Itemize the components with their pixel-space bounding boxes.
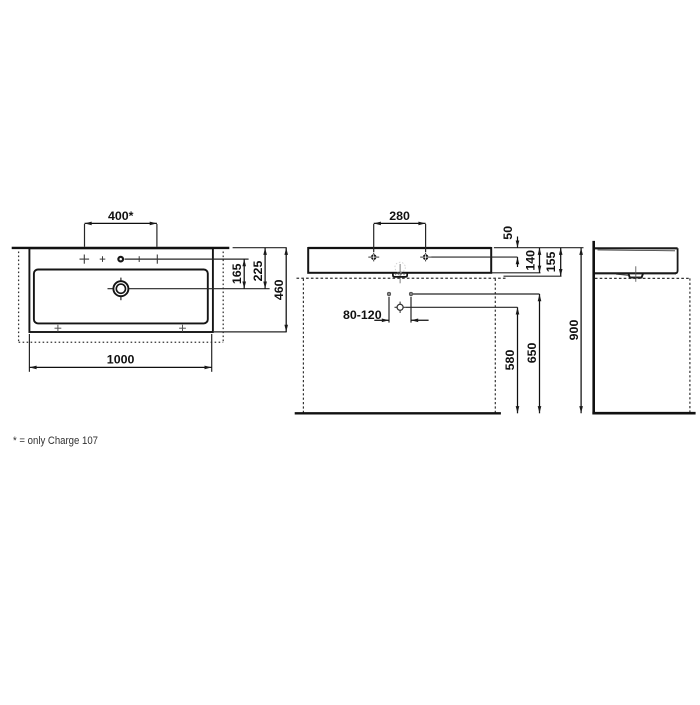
svg-text:460: 460 bbox=[272, 279, 286, 300]
svg-text:650: 650 bbox=[525, 342, 539, 363]
svg-text:400*: 400* bbox=[108, 209, 134, 223]
svg-text:50: 50 bbox=[501, 226, 515, 240]
svg-text:155: 155 bbox=[544, 251, 558, 272]
svg-text:80-120: 80-120 bbox=[343, 308, 382, 322]
svg-text:165: 165 bbox=[230, 263, 244, 284]
svg-text:225: 225 bbox=[251, 261, 265, 282]
svg-text:580: 580 bbox=[503, 350, 517, 371]
svg-text:140: 140 bbox=[523, 250, 537, 271]
svg-text:* = only Charge 107: * = only Charge 107 bbox=[13, 435, 98, 447]
svg-text:1000: 1000 bbox=[107, 353, 135, 367]
svg-text:280: 280 bbox=[389, 209, 410, 223]
svg-text:900: 900 bbox=[567, 320, 581, 341]
